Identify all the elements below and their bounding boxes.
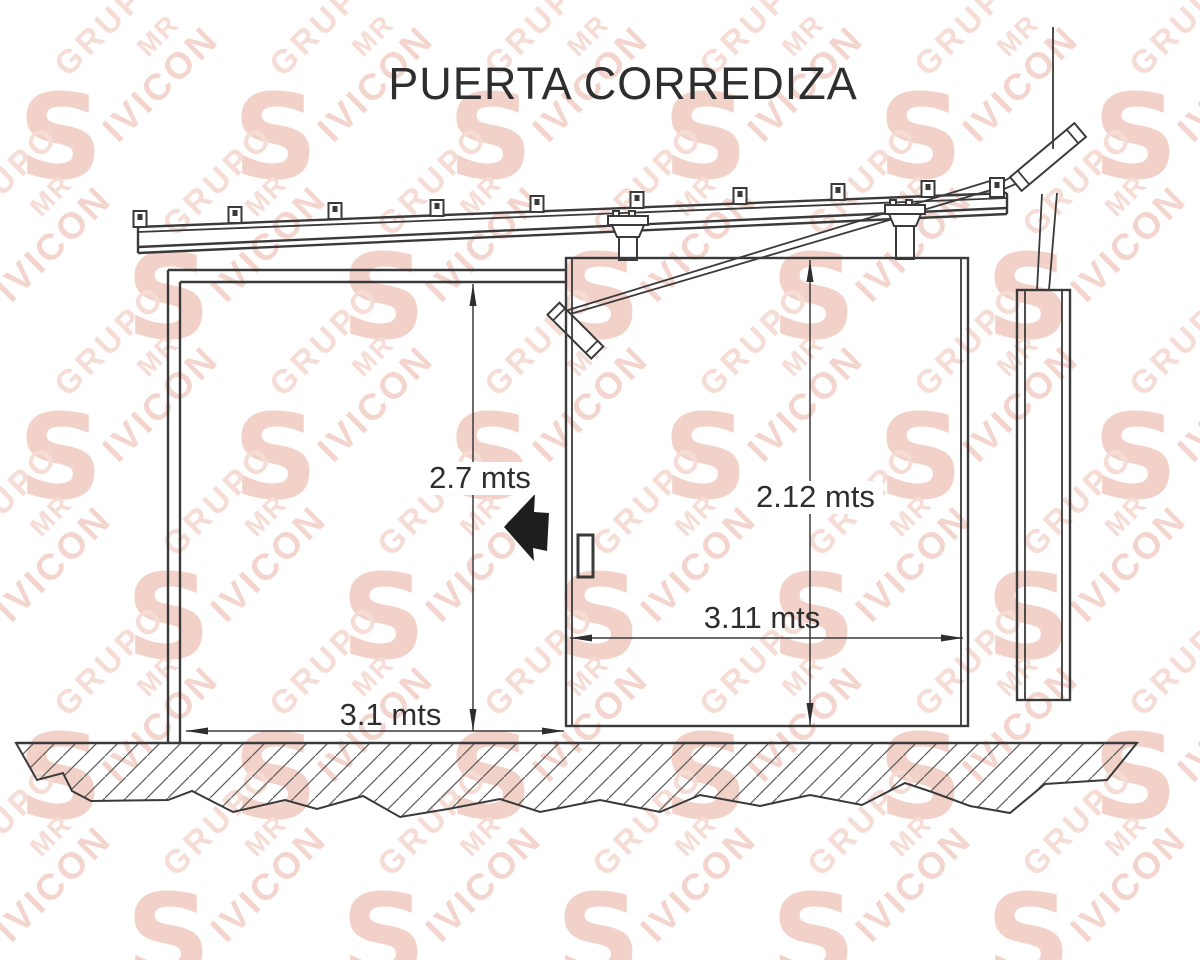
trolley-plate — [608, 216, 648, 225]
drawing-svg: S GRUPO MR IVICON — [0, 0, 1200, 960]
trolley-bracket — [889, 214, 921, 226]
track-clip — [631, 192, 644, 208]
dim-label-door-height: 2.12 mts — [748, 481, 883, 514]
dim-label-door-width: 3.11 mts — [697, 602, 827, 635]
drawing-title: PUERTA CORREDIZA — [46, 58, 1200, 110]
track-clip — [134, 211, 147, 227]
track-clip — [229, 207, 242, 223]
trolley-strap — [619, 237, 637, 260]
dim-label-opening-width: 3.1 mts — [328, 699, 453, 732]
cable-anchor-clip — [990, 178, 1004, 197]
trolley-plate — [885, 205, 925, 214]
sliding-door-drawing: S GRUPO MR IVICON — [0, 0, 1200, 960]
trolley-bracket — [612, 225, 644, 237]
track-clip — [922, 181, 935, 197]
track-clip — [329, 203, 342, 219]
track-clip — [431, 200, 444, 216]
track-clip — [734, 188, 747, 204]
ground — [16, 743, 1137, 817]
dim-label-opening-height: 2.7 mts — [415, 462, 545, 495]
track-clip — [832, 184, 845, 200]
ground-hatch — [16, 743, 1137, 817]
trolley-strap — [896, 226, 914, 259]
track-clip — [531, 196, 544, 212]
